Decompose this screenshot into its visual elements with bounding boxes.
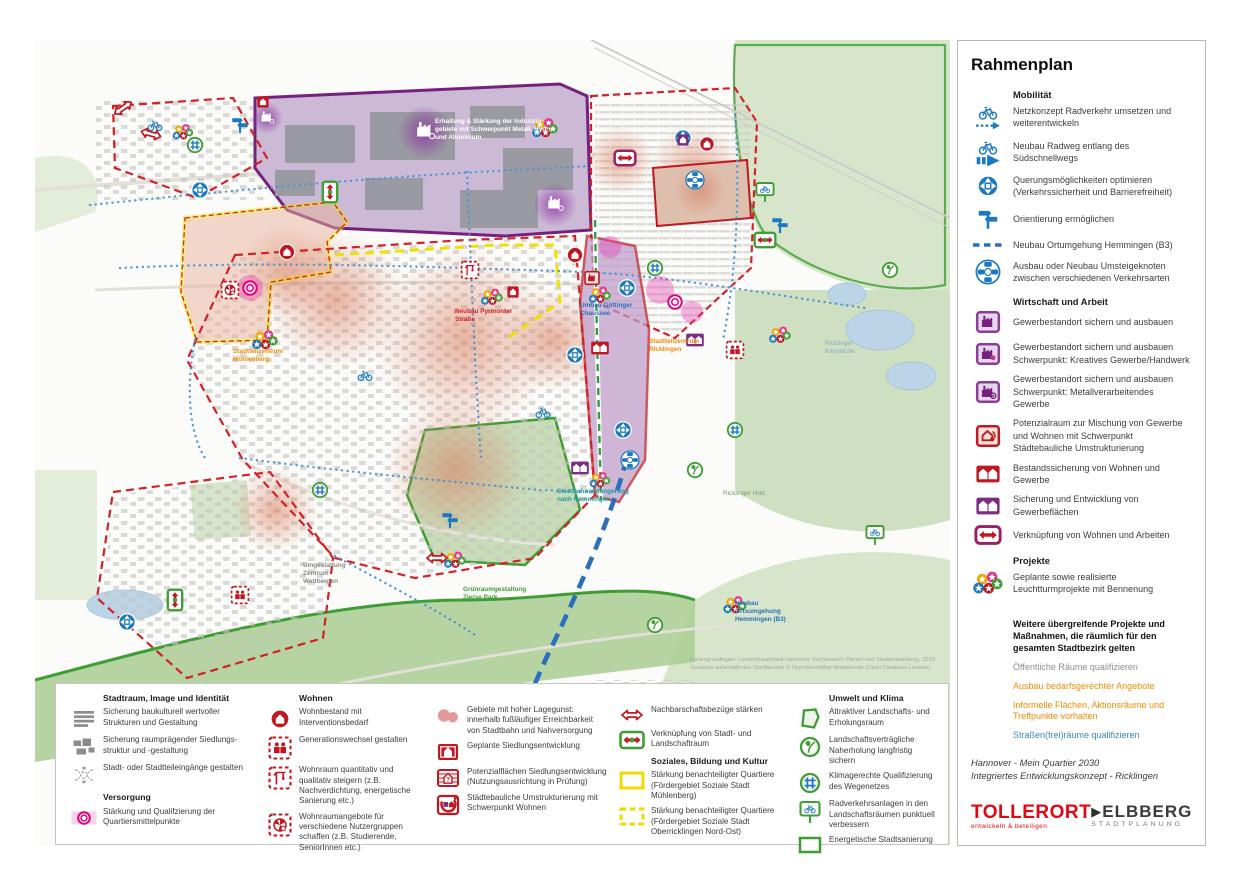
- citywide-measures: Weitere übergreifende Projekte und Maßna…: [1013, 619, 1183, 742]
- settlement-blocks-icon: [69, 735, 98, 758]
- district-gateway-icon: [69, 763, 98, 786]
- legend-label: Geplante Siedlungsentwicklung: [467, 741, 580, 751]
- legend-label: Netzkonzept Radverkehr umsetzen und weit…: [1013, 105, 1192, 130]
- plan-footer-line1: Hannover - Mein Quartier 2030: [971, 757, 1158, 770]
- map-label-zentrum-muehlenberg: Stadtteilzentrum Mühlenberg: [233, 348, 295, 364]
- two-houses-purple-icon: [971, 496, 1005, 516]
- legend-row: Gewerbestandort sichern und ausbauen Sch…: [971, 341, 1192, 366]
- transfer-hub-icon: [686, 171, 704, 189]
- generation-change-icon: [232, 587, 249, 604]
- legend-label: Stärkung benachteiligter Quartiere (Förd…: [651, 770, 785, 801]
- legend-row: Stärkung und Qualifzierung der Quartiers…: [69, 807, 255, 828]
- generation-change-icon: [727, 342, 744, 359]
- legend-label: Neubau Ortumgehung Hemmingen (B3): [1013, 239, 1173, 251]
- factory-purple-icon: [971, 310, 1005, 334]
- elbberg-logo-mark: ▶: [1091, 805, 1101, 818]
- quarter-center-icon: [243, 281, 257, 295]
- energetic-renewal-icon: [795, 835, 824, 854]
- crossing-icon: [192, 182, 209, 199]
- legend-header: Stadtraum, Image und Identität: [103, 693, 255, 703]
- legend-label: Klimagerechte Qualifizierung des Wegenet…: [829, 771, 935, 792]
- legend-row: Gewerbestandort sichern und ausbauen Sch…: [971, 373, 1192, 410]
- legend-label: Städtebauliche Umstrukturierung mit Schw…: [467, 793, 607, 814]
- housing-intervention-icon: [567, 247, 582, 262]
- elbberg-logo-tagline: STADTPLANUNG: [1091, 822, 1192, 829]
- legend-row: Landschaftsverträgliche Naherholung lang…: [795, 735, 935, 766]
- quarter-center-icon: [69, 807, 98, 828]
- neighborhood-arrow-icon: [617, 705, 646, 724]
- legend-row: Potenzialraum zur Mischung von Gewerbe u…: [971, 417, 1192, 454]
- section-header-mobilitaet: Mobilität: [1013, 89, 1192, 100]
- tollerort-logo: TOLLERORT entwickeln & beteiligen: [971, 803, 1091, 831]
- legend-label: Gewerbestandort sichern und ausbauen Sch…: [1013, 373, 1192, 410]
- legend-col-wohnen: Wohnen Wohnbestand mit Interventionsbeda…: [260, 693, 428, 835]
- attribution-line: Kartengrundlagen: Landeshauptstadt Hanno…: [690, 656, 952, 664]
- plan-footer-line2: Integriertes Entwicklungskonzept - Rickl…: [971, 770, 1158, 783]
- map-attribution: Kartengrundlagen: Landeshauptstadt Hanno…: [690, 656, 952, 673]
- legend-row: Wohnraum quantitativ und qualitativ stei…: [265, 765, 423, 806]
- elbberg-logo: ▶ ELBBERG STADTPLANUNG: [1091, 803, 1192, 829]
- crossing-circle-icon: [971, 173, 1005, 199]
- bottom-legend: Stadtraum, Image und Identität Sicherung…: [55, 683, 949, 845]
- climate-paths-icon: [795, 771, 824, 794]
- legend-row: Klimagerechte Qualifizierung des Wegenet…: [795, 771, 935, 794]
- citywide-item: Ausbau bedarfsgerechter Angebote: [1013, 681, 1183, 693]
- legend-row: Ausbau oder Neubau Umsteigeknoten zwisch…: [971, 258, 1192, 286]
- legend-label: Querungsmöglichkeiten optimieren (Verkeh…: [1013, 174, 1192, 199]
- citywide-item: Öffentliche Räume qualifizieren: [1013, 662, 1183, 674]
- potential-areas-icon: [433, 767, 462, 788]
- legend-label: Sicherung raumprägender Siedlungs­strukt…: [103, 735, 255, 756]
- legend-label: Wohnbestand mit Interventionsbedarf: [299, 707, 423, 728]
- nature-recreation-icon: [648, 618, 662, 632]
- legend-label: Gebiete mit hoher Lagegunst: innerhalb f…: [467, 705, 607, 736]
- landscape-area-icon: [795, 707, 824, 730]
- city-landscape-link-icon: [168, 590, 182, 611]
- factory-creative-icon: [971, 342, 1005, 366]
- city-landscape-link-icon: [755, 233, 776, 247]
- legend-row: Wohnraumangebote für verschiedene Nutzer…: [265, 812, 423, 853]
- legend-row: Energetische Stadtsanierung: [795, 835, 935, 854]
- legend-row: Sicherung und Entwicklung von Gewerbeflä…: [971, 493, 1192, 518]
- legend-row: Geplante sowie realisierte Leuchtturmpro…: [971, 569, 1192, 597]
- map-label-gruenraum: Grünraumgestaltung Zierse Park: [463, 586, 529, 602]
- map-label-kiesteiche: Ricklinger Kiesteiche: [825, 340, 883, 356]
- heritage-lines-icon: [69, 707, 98, 730]
- legend-label: Verknüpfung von Stadt- und Landschaftrau…: [651, 729, 785, 750]
- map-label-industry: Erhaltung & Stärkung der Industrie­gebie…: [435, 118, 560, 142]
- map-label-b3: Neubau Ortsumgehung Hemmingen (B3): [735, 600, 805, 624]
- legend-row: Stärkung benachteiligter Quartiere (Förd…: [617, 806, 785, 837]
- tollerort-logo-name: TOLLERORT: [971, 803, 1091, 822]
- legend-header: Wohnen: [299, 693, 423, 703]
- legend-row: Neubau Ortumgehung Hemmingen (B3): [971, 239, 1192, 251]
- legend-header: Umwelt und Klima: [829, 693, 935, 703]
- map-label-ricklinger-holz: Ricklinger Holz: [723, 490, 766, 498]
- legend-row: Geplante Siedlungsentwicklung: [433, 741, 607, 762]
- two-houses-purple-icon: [571, 462, 589, 475]
- section-header-wirtschaft: Wirtschaft und Arbeit: [1013, 296, 1192, 307]
- legend-label: Stadt- oder Stadtteileingänge gestalten: [103, 763, 243, 773]
- logos-row: TOLLERORT entwickeln & beteiligen ▶ ELBB…: [971, 803, 1192, 831]
- crossing-icon: [619, 280, 636, 297]
- blue-dashed-line-icon: [971, 240, 1005, 250]
- bike-landscape-icon: [795, 799, 824, 824]
- crossing-icon: [615, 422, 632, 439]
- legend-label: Gewerbestandort sichern und ausbauen: [1013, 316, 1173, 328]
- legend-label: Orientierung ermöglichen: [1013, 213, 1114, 225]
- urban-restructuring-icon: [433, 793, 462, 816]
- housing-offers-icon: [265, 812, 294, 837]
- legend-row: Sicherung raumprägender Siedlungs­strukt…: [69, 735, 255, 758]
- live-work-link-icon: [971, 525, 1005, 545]
- house-icon: [507, 286, 518, 297]
- legend-label: Bestandssicherung von Wohnen und Gewerbe: [1013, 462, 1192, 487]
- legend-label: Energetische Stadtsanierung: [829, 835, 933, 845]
- project-stars-icon: [971, 569, 1005, 597]
- legend-panel: Rahmenplan Mobilität Netzkonzept Radverk…: [957, 40, 1206, 846]
- legend-label: Ausbau oder Neubau Umsteigeknoten zwisch…: [1013, 260, 1192, 285]
- legend-header: Soziales, Bildung und Kultur: [651, 756, 785, 766]
- signpost-icon: [971, 206, 1005, 232]
- housing-increase-icon: [462, 262, 479, 279]
- housing-increase-icon: [265, 765, 294, 790]
- legend-row: Bestandssicherung von Wohnen und Gewerbe: [971, 462, 1192, 487]
- legend-row: Nachbarschaftsbezüge stärken: [617, 705, 785, 724]
- legend-label: Wohnraum quantitativ und qualitativ stei…: [299, 765, 423, 806]
- two-houses-red-icon: [971, 464, 1005, 484]
- housing-intervention-icon: [700, 137, 714, 151]
- crossing-icon: [567, 347, 584, 364]
- quarter-center-icon: [668, 295, 682, 309]
- climate-paths-icon: [313, 483, 327, 497]
- city-landscape-link-icon: [617, 729, 646, 750]
- legend-row: Querungsmöglichkeiten optimieren (Verkeh…: [971, 173, 1192, 199]
- legend-label: Sicherung und Entwicklung von Gewerbeflä…: [1013, 493, 1192, 518]
- legend-row: Verknüpfung von Stadt- und Landschaftrau…: [617, 729, 785, 750]
- yellow-dashed-frame-icon: [617, 806, 646, 826]
- legend-row: Sicherung baukulturell wertvoller Strukt…: [69, 707, 255, 730]
- legend-row: Radverkehrsanlagen in den Landschafts­rä…: [795, 799, 935, 830]
- legend-col-umwelt: Umwelt und Klima Attraktiver Landschafts…: [790, 693, 940, 835]
- legend-row: Verknüpfung von Wohnen und Arbeiten: [971, 525, 1192, 545]
- yellow-solid-frame-icon: [617, 770, 646, 790]
- legend-label: Radverkehrsanlagen in den Landschafts­rä…: [829, 799, 935, 830]
- legend-label: Attraktiver Landschafts- und Erholungsra…: [829, 707, 935, 728]
- legend-header: Versorgung: [103, 792, 255, 802]
- legend-row: Städtebauliche Umstrukturierung mit Schw…: [433, 793, 607, 816]
- transfer-hub-icon: [971, 258, 1005, 286]
- nature-recreation-icon: [883, 263, 897, 277]
- legend-label: Sicherung baukulturell wertvoller Strukt…: [103, 707, 255, 728]
- legend-label: Landschaftsverträgliche Naherholung lang…: [829, 735, 935, 766]
- bike-dotted-arrow-icon: [971, 103, 1005, 131]
- legend-label: Nachbarschaftsbezüge stärken: [651, 705, 763, 715]
- location-advantage-icon: [433, 705, 462, 726]
- legend-label: Generationswechsel gestalten: [299, 735, 407, 745]
- transfer-hub-icon: [621, 451, 639, 469]
- panel-title: Rahmenplan: [971, 55, 1192, 75]
- map-label-zentrum-ricklingen: Stadtteilzentrum Ricklingen: [649, 338, 711, 354]
- legend-row: Stärkung benachteiligter Quartiere (Förd…: [617, 770, 785, 801]
- attribution-line: Gebäude außerhalb des Stadtbezirks © Ope…: [690, 664, 952, 672]
- tollerort-logo-tagline: entwickeln & beteiligen: [971, 824, 1091, 831]
- legend-label: Neubau Radweg entlang des Südschnellwegs: [1013, 140, 1192, 165]
- legend-row: Gewerbestandort sichern und ausbauen: [971, 310, 1192, 334]
- section-header-projekte: Projekte: [1013, 555, 1192, 566]
- legend-label: Gewerbestandort sichern und ausbauen Sch…: [1013, 341, 1192, 366]
- city-landscape-link-icon: [323, 182, 337, 203]
- nature-recreation-icon: [795, 735, 824, 758]
- bike-solid-arrow-icon: [971, 138, 1005, 166]
- legend-label: Stärkung und Qualifzierung der Quartiers…: [103, 807, 255, 828]
- legend-row: Orientierung ermöglichen: [971, 206, 1192, 232]
- legend-col-soziales: Nachbarschaftsbezüge stärken Verknüpfung…: [612, 693, 790, 835]
- citywide-item: Informelle Flächen, Aktionsräume und Tre…: [1013, 700, 1183, 723]
- legend-row: Netzkonzept Radverkehr umsetzen und weit…: [971, 103, 1192, 131]
- legend-label: Potenzialflächen Siedlungsentwicklung (N…: [467, 767, 607, 788]
- house-icon: [257, 96, 268, 107]
- plan-footer: Hannover - Mein Quartier 2030 Integriert…: [971, 757, 1158, 783]
- map-label-wettbergen: Umgestaltung Zentrum Wettbergen: [303, 562, 365, 586]
- crossing-icon: [119, 614, 136, 631]
- nature-recreation-icon: [688, 463, 702, 477]
- live-work-link-icon: [615, 151, 636, 165]
- map-label-stadtbahn: Stadtbahnverlängerung nach Hemmingen: [557, 488, 629, 504]
- legend-row: Gebiete mit hoher Lagegunst: innerhalb f…: [433, 705, 607, 736]
- legend-row: Neubau Radweg entlang des Südschnellwegs: [971, 138, 1192, 166]
- housing-intervention-icon: [279, 244, 294, 259]
- generation-change-icon: [265, 735, 294, 760]
- legend-label: Verknüpfung von Wohnen und Arbeiten: [1013, 529, 1169, 541]
- elbberg-logo-name: ELBBERG: [1102, 803, 1192, 820]
- legend-col-stadtraum: Stadtraum, Image und Identität Sicherung…: [64, 693, 260, 835]
- legend-row: Attraktiver Landschafts- und Erholungsra…: [795, 707, 935, 730]
- legend-col-siedlung: Gebiete mit hoher Lagegunst: innerhalb f…: [428, 693, 612, 835]
- legend-label: Potenzialraum zur Mischung von Gewerbe u…: [1013, 417, 1192, 454]
- factory-red-icon: [585, 272, 599, 285]
- legend-row: Potenzialflächen Siedlungsentwicklung (N…: [433, 767, 607, 788]
- housing-intervention-icon: [265, 707, 294, 730]
- mixed-use-potential-icon: [971, 424, 1005, 448]
- two-houses-red-icon: [591, 342, 609, 355]
- climate-paths-icon: [648, 261, 662, 275]
- legend-label: Geplante sowie realisierte Leuchtturmpro…: [1013, 571, 1192, 596]
- house-icon: [677, 134, 688, 145]
- legend-row: Stadt- oder Stadtteileingänge gestalten: [69, 763, 255, 786]
- planned-settlement-icon: [433, 741, 462, 762]
- citywide-title: Weitere übergreifende Projekte und Maßna…: [1013, 619, 1183, 654]
- climate-paths-icon: [188, 138, 202, 152]
- map-label-pyrmonter: Neubau Pyrmonter Straße: [455, 308, 517, 324]
- legend-label: Stärkung benachteiligter Quartiere (Förd…: [651, 806, 785, 837]
- housing-offers-icon: [222, 282, 239, 299]
- map-label-goettinger: Umbau Göttinger Chaussee: [580, 302, 642, 318]
- legend-label: Wohnraumangebote für verschiedene Nutzer…: [299, 812, 423, 853]
- legend-row: Generationswechsel gestalten: [265, 735, 423, 760]
- factory-metal-icon: [971, 380, 1005, 404]
- citywide-item: Straßen(frei)räume qualifizieren: [1013, 730, 1183, 742]
- legend-row: Wohnbestand mit Interventionsbedarf: [265, 707, 423, 730]
- climate-paths-icon: [728, 423, 742, 437]
